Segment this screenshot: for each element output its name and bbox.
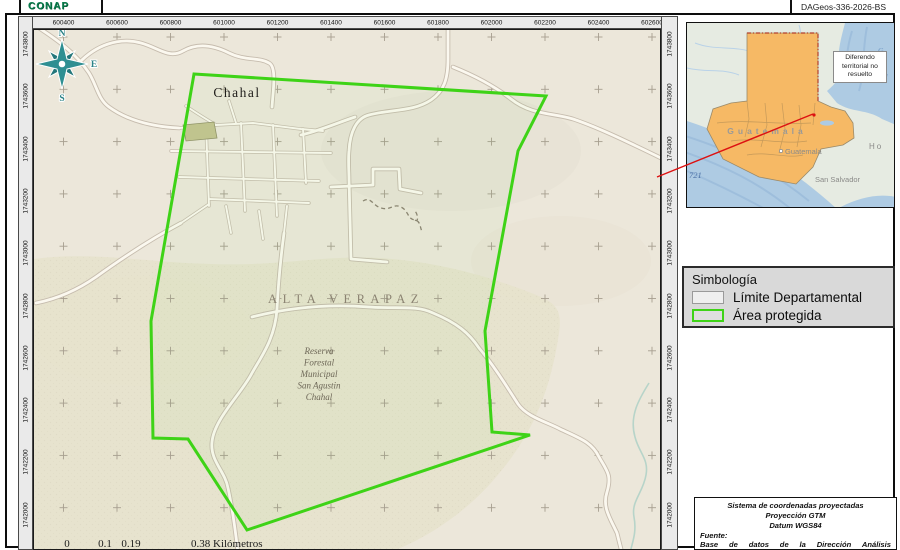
x-axis-label: 600800 (160, 19, 182, 26)
territorial-note-line: Diferendo (835, 54, 885, 63)
legend-item-label: Límite Departamental (733, 290, 862, 305)
svg-text:0.1: 0.1 (98, 538, 112, 550)
map-drawing: Chahal ALTA VERAPAZ Reserva Forestal Mun… (34, 30, 661, 550)
svg-text:Municipal: Municipal (300, 369, 338, 379)
y-axis-label: 1742400 (22, 397, 29, 422)
y-axis-label: 1742600 (22, 345, 29, 370)
honduras-label-fragment: Ho (869, 142, 883, 151)
ref-number-label: 721 (689, 170, 702, 180)
x-axis-label: 602600 (641, 19, 663, 26)
datum-label: Datum WGS84 (700, 521, 891, 531)
y-axis-label: 1743000 (666, 241, 673, 266)
x-axis-label: 602000 (481, 19, 503, 26)
x-axis-label: 601600 (374, 19, 396, 26)
x-axis-label: 600400 (53, 19, 75, 26)
x-axis-label: 601800 (427, 19, 449, 26)
y-axis-strip-right: 1743800174360017434001743200174300017428… (661, 16, 678, 550)
territorial-note-line: territorial no (835, 63, 885, 72)
svg-text:Chahal: Chahal (306, 392, 333, 402)
y-axis-label: 1743200 (666, 188, 673, 213)
san-salvador-label: San Salvador (815, 175, 861, 184)
department-label: ALTA VERAPAZ (268, 292, 424, 306)
conap-logo-text: CONAP (28, 1, 69, 12)
y-axis-label: 1743800 (22, 31, 29, 56)
legend: Simbología Límite DepartamentalÁrea prot… (682, 266, 895, 328)
lake-izabal (820, 120, 834, 125)
svg-text:0: 0 (64, 538, 70, 550)
callout-target-dot (812, 113, 815, 116)
y-axis-label: 1743000 (22, 241, 29, 266)
inset-locator-map: Guatemala Guatemala San Salvador Ho G Ho… (686, 22, 895, 208)
y-axis-strip-left: 1743800174360017434001743200174300017428… (18, 16, 33, 550)
map-sheet: CONAP DAGeos-336-2026-BS 600400600600600… (0, 0, 900, 550)
town-label: Chahal (213, 85, 260, 100)
x-axis-label: 601400 (320, 19, 342, 26)
map-credits: Sistema de coordenadas proyectadas Proye… (694, 497, 897, 550)
x-axis-label: 602400 (588, 19, 610, 26)
y-axis-label: 1742600 (666, 345, 673, 370)
y-axis-label: 1742200 (22, 450, 29, 475)
x-axis-label: 600600 (106, 19, 128, 26)
conap-logo: CONAP (19, 0, 103, 13)
y-axis-label: 1742200 (666, 450, 673, 475)
y-axis-label: 1742400 (666, 397, 673, 422)
y-axis-label: 1743600 (22, 84, 29, 109)
y-axis-label: 1743400 (666, 136, 673, 161)
header-bar: CONAP DAGeos-336-2026-BS (5, 0, 895, 15)
svg-text:0.19: 0.19 (121, 538, 141, 550)
source-label: Fuente: (700, 531, 891, 540)
y-axis-label: 1742000 (22, 502, 29, 527)
legend-item-label: Área protegida (733, 308, 822, 323)
legend-item: Límite Departamental (692, 290, 885, 305)
compass-north-label: N (59, 30, 66, 39)
capital-city-dot (779, 149, 782, 152)
legend-item: Área protegida (692, 308, 885, 323)
x-axis-label: 602200 (534, 19, 556, 26)
projection-label: Proyección GTM (700, 511, 891, 521)
y-axis-label: 1742000 (666, 502, 673, 527)
compass-south-label: S (59, 94, 64, 104)
country-label: Guatemala (727, 126, 806, 136)
legend-title: Simbología (692, 272, 885, 287)
y-axis-label: 1742800 (22, 293, 29, 318)
legend-items: Límite DepartamentalÁrea protegida (692, 290, 885, 323)
territorial-note-line: resuelto (835, 71, 885, 80)
y-axis-label: 1743400 (22, 136, 29, 161)
territorial-note: Diferendo territorial no resuelto (833, 51, 887, 83)
y-axis-label: 1743200 (22, 188, 29, 213)
document-code: DAGeos-336-2026-BS (790, 0, 895, 13)
map-canvas: Chahal ALTA VERAPAZ Reserva Forestal Mun… (33, 29, 661, 550)
x-axis-label: 601000 (213, 19, 235, 26)
svg-text:0.38 Kilómetros: 0.38 Kilómetros (191, 538, 263, 550)
department-boundary-swatch (692, 291, 724, 304)
svg-text:Reserva: Reserva (304, 346, 334, 356)
source-text: Base de datos de la Dirección Análisis G… (700, 540, 891, 550)
x-axis-label: 601200 (267, 19, 289, 26)
coordinate-system-title: Sistema de coordenadas proyectadas (700, 501, 891, 511)
y-axis-label: 1743600 (666, 84, 673, 109)
y-axis-label: 1743800 (666, 31, 673, 56)
x-axis-strip: 6004006006006008006010006012006014006016… (18, 16, 678, 29)
compass-east-label: E (91, 60, 97, 70)
capital-label: Guatemala (785, 147, 823, 156)
y-axis-label: 1742800 (666, 293, 673, 318)
svg-text:Forestal: Forestal (303, 358, 335, 368)
svg-text:San Agustin: San Agustin (297, 381, 341, 391)
protected-area-swatch (692, 309, 724, 322)
